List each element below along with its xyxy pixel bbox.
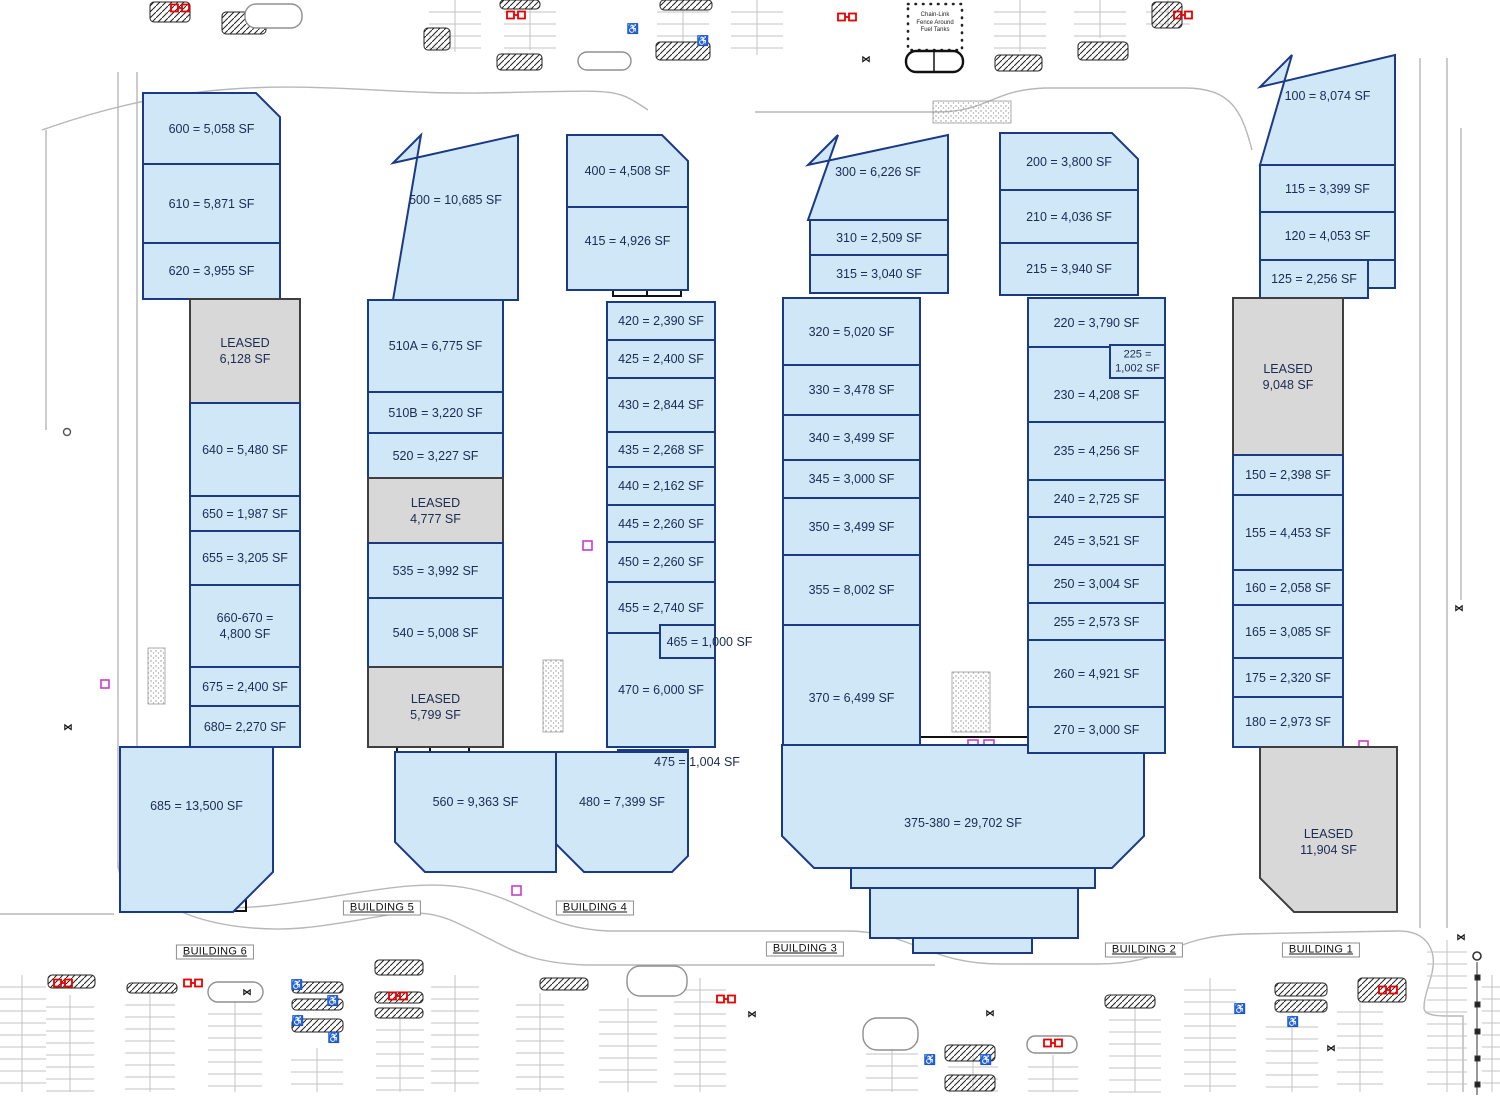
unit-320 bbox=[783, 298, 920, 365]
unit-240 bbox=[1028, 480, 1165, 517]
valve-bowtie-icon: ⋈ bbox=[1455, 603, 1464, 613]
hatched-island bbox=[945, 1075, 995, 1091]
fire-valve-marker bbox=[838, 14, 856, 21]
unit-620 bbox=[143, 243, 280, 299]
unit-440 bbox=[607, 467, 715, 505]
hatched-island bbox=[660, 0, 712, 10]
shape-375-step1 bbox=[851, 868, 1095, 888]
unit-535 bbox=[368, 543, 503, 598]
unit-350 bbox=[783, 498, 920, 555]
unit-480 bbox=[556, 752, 688, 872]
handicap-icon: ♿ bbox=[980, 1053, 992, 1066]
unit-100 bbox=[1260, 55, 1395, 165]
unit-270 bbox=[1028, 707, 1165, 753]
unit-425 bbox=[607, 340, 715, 378]
unit-430 bbox=[607, 378, 715, 432]
unit-685 bbox=[120, 747, 273, 912]
unit-255 bbox=[1028, 603, 1165, 640]
unit-435 bbox=[607, 432, 715, 467]
unit-560 bbox=[395, 752, 556, 872]
building-label-1: BUILDING 6 bbox=[176, 945, 254, 960]
handicap-icon: ♿ bbox=[627, 22, 639, 35]
hatched-island bbox=[375, 992, 423, 1003]
valve-bowtie-icon: ⋈ bbox=[64, 722, 73, 732]
fire-valve-marker bbox=[507, 12, 525, 19]
valve-bowtie-icon: ⋈ bbox=[243, 987, 252, 997]
unit-355 bbox=[783, 555, 920, 625]
unit-345 bbox=[783, 460, 920, 498]
unit-155 bbox=[1233, 495, 1343, 570]
shape-375-step2 bbox=[870, 888, 1078, 938]
unit-415 bbox=[567, 207, 688, 290]
handicap-icon: ♿ bbox=[1287, 1015, 1299, 1028]
fuel-tank-area bbox=[906, 4, 963, 72]
shape-120-sliver bbox=[1368, 260, 1395, 288]
unit-115 bbox=[1260, 165, 1395, 212]
valve-bowtie-icon: ⋈ bbox=[1327, 1043, 1336, 1053]
valve-bowtie-icon: ⋈ bbox=[986, 1008, 995, 1018]
unit-L-6128 bbox=[190, 299, 300, 403]
valve-bowtie-icon: ⋈ bbox=[862, 54, 871, 64]
handicap-icon: ♿ bbox=[924, 1053, 936, 1066]
hatched-island bbox=[1105, 995, 1155, 1008]
building-label-2: BUILDING 5 bbox=[343, 901, 421, 916]
unit-260 bbox=[1028, 640, 1165, 707]
unit-220 bbox=[1028, 298, 1165, 347]
unit-315 bbox=[810, 255, 948, 293]
unit-250 bbox=[1028, 565, 1165, 603]
unit-675 bbox=[190, 667, 300, 706]
unit-165 bbox=[1233, 605, 1343, 658]
unit-650 bbox=[190, 496, 300, 531]
handicap-icon: ♿ bbox=[1234, 1002, 1246, 1015]
unit-660-670 bbox=[190, 585, 300, 667]
building-label-3: BUILDING 4 bbox=[556, 901, 634, 916]
unit-330 bbox=[783, 365, 920, 415]
fire-valve-marker bbox=[184, 980, 202, 987]
unit-210 bbox=[1000, 190, 1138, 243]
unit-310 bbox=[810, 220, 948, 255]
unit-450 bbox=[607, 542, 715, 582]
building-label-4: BUILDING 3 bbox=[766, 942, 844, 957]
unit-370 bbox=[783, 625, 920, 745]
unit-640 bbox=[190, 403, 300, 496]
unit-200 bbox=[1000, 133, 1138, 190]
building-label-5: BUILDING 2 bbox=[1105, 943, 1183, 958]
hatched-island bbox=[1152, 2, 1182, 28]
handicap-icon: ♿ bbox=[328, 1031, 340, 1044]
unit-L-11904 bbox=[1260, 747, 1397, 912]
shape-375-step3 bbox=[913, 938, 1032, 953]
unit-610 bbox=[143, 164, 280, 243]
hatched-island bbox=[375, 960, 423, 975]
unit-150 bbox=[1233, 455, 1343, 495]
unit-400 bbox=[567, 135, 688, 207]
unit-L-4777 bbox=[368, 478, 503, 543]
unit-520 bbox=[368, 433, 503, 478]
unit-540 bbox=[368, 598, 503, 667]
unit-300 bbox=[808, 135, 948, 220]
unit-510B bbox=[368, 392, 503, 433]
unit-L-5799 bbox=[368, 667, 503, 747]
unit-160 bbox=[1233, 570, 1343, 605]
unit-420 bbox=[607, 302, 715, 340]
unit-120 bbox=[1260, 212, 1395, 260]
chain-link-fence bbox=[908, 4, 962, 50]
unit-125 bbox=[1260, 260, 1368, 298]
hatched-island bbox=[1078, 42, 1128, 60]
hatched-island bbox=[127, 983, 177, 993]
unit-215 bbox=[1000, 243, 1138, 295]
unit-510A bbox=[368, 300, 503, 392]
unit-600 bbox=[143, 93, 280, 164]
unit-500 bbox=[393, 135, 518, 300]
unit-465 bbox=[660, 625, 715, 658]
unit-655 bbox=[190, 531, 300, 585]
building-label-6: BUILDING 1 bbox=[1282, 943, 1360, 958]
unit-680 bbox=[190, 706, 300, 747]
hatched-island bbox=[497, 54, 542, 70]
valve-bowtie-icon: ⋈ bbox=[748, 1009, 757, 1019]
handicap-icon: ♿ bbox=[292, 1014, 304, 1027]
hatched-island bbox=[1275, 983, 1327, 996]
unit-245 bbox=[1028, 517, 1165, 565]
handicap-icon: ♿ bbox=[291, 978, 303, 991]
hatched-island bbox=[1358, 978, 1406, 1002]
site-decoration-layer: ♿♿♿♿♿♿♿♿♿♿⋈⋈⋈⋈⋈⋈⋈⋈ bbox=[0, 0, 1500, 1103]
unit-225 bbox=[1110, 345, 1165, 378]
handicap-icon: ♿ bbox=[697, 34, 709, 47]
hatched-island bbox=[995, 55, 1042, 71]
hatched-island bbox=[375, 1008, 423, 1018]
site-plan-canvas: ♿♿♿♿♿♿♿♿♿♿⋈⋈⋈⋈⋈⋈⋈⋈ Chain-Link Fence Arou… bbox=[0, 0, 1500, 1103]
hatched-island bbox=[500, 0, 540, 9]
valve-bowtie-icon: ⋈ bbox=[1457, 932, 1466, 942]
hatched-island bbox=[540, 978, 588, 990]
hatched-island bbox=[424, 28, 450, 50]
fire-valve-marker bbox=[717, 996, 735, 1003]
handicap-icon: ♿ bbox=[327, 994, 339, 1007]
unit-340 bbox=[783, 415, 920, 460]
property-line bbox=[1473, 952, 1481, 1095]
unit-L-9048 bbox=[1233, 298, 1343, 455]
hatched-island bbox=[1275, 1000, 1327, 1012]
unit-175 bbox=[1233, 658, 1343, 697]
unit-235 bbox=[1028, 422, 1165, 480]
unit-375-380 bbox=[782, 745, 1144, 868]
unit-445 bbox=[607, 505, 715, 542]
unit-180 bbox=[1233, 697, 1343, 747]
